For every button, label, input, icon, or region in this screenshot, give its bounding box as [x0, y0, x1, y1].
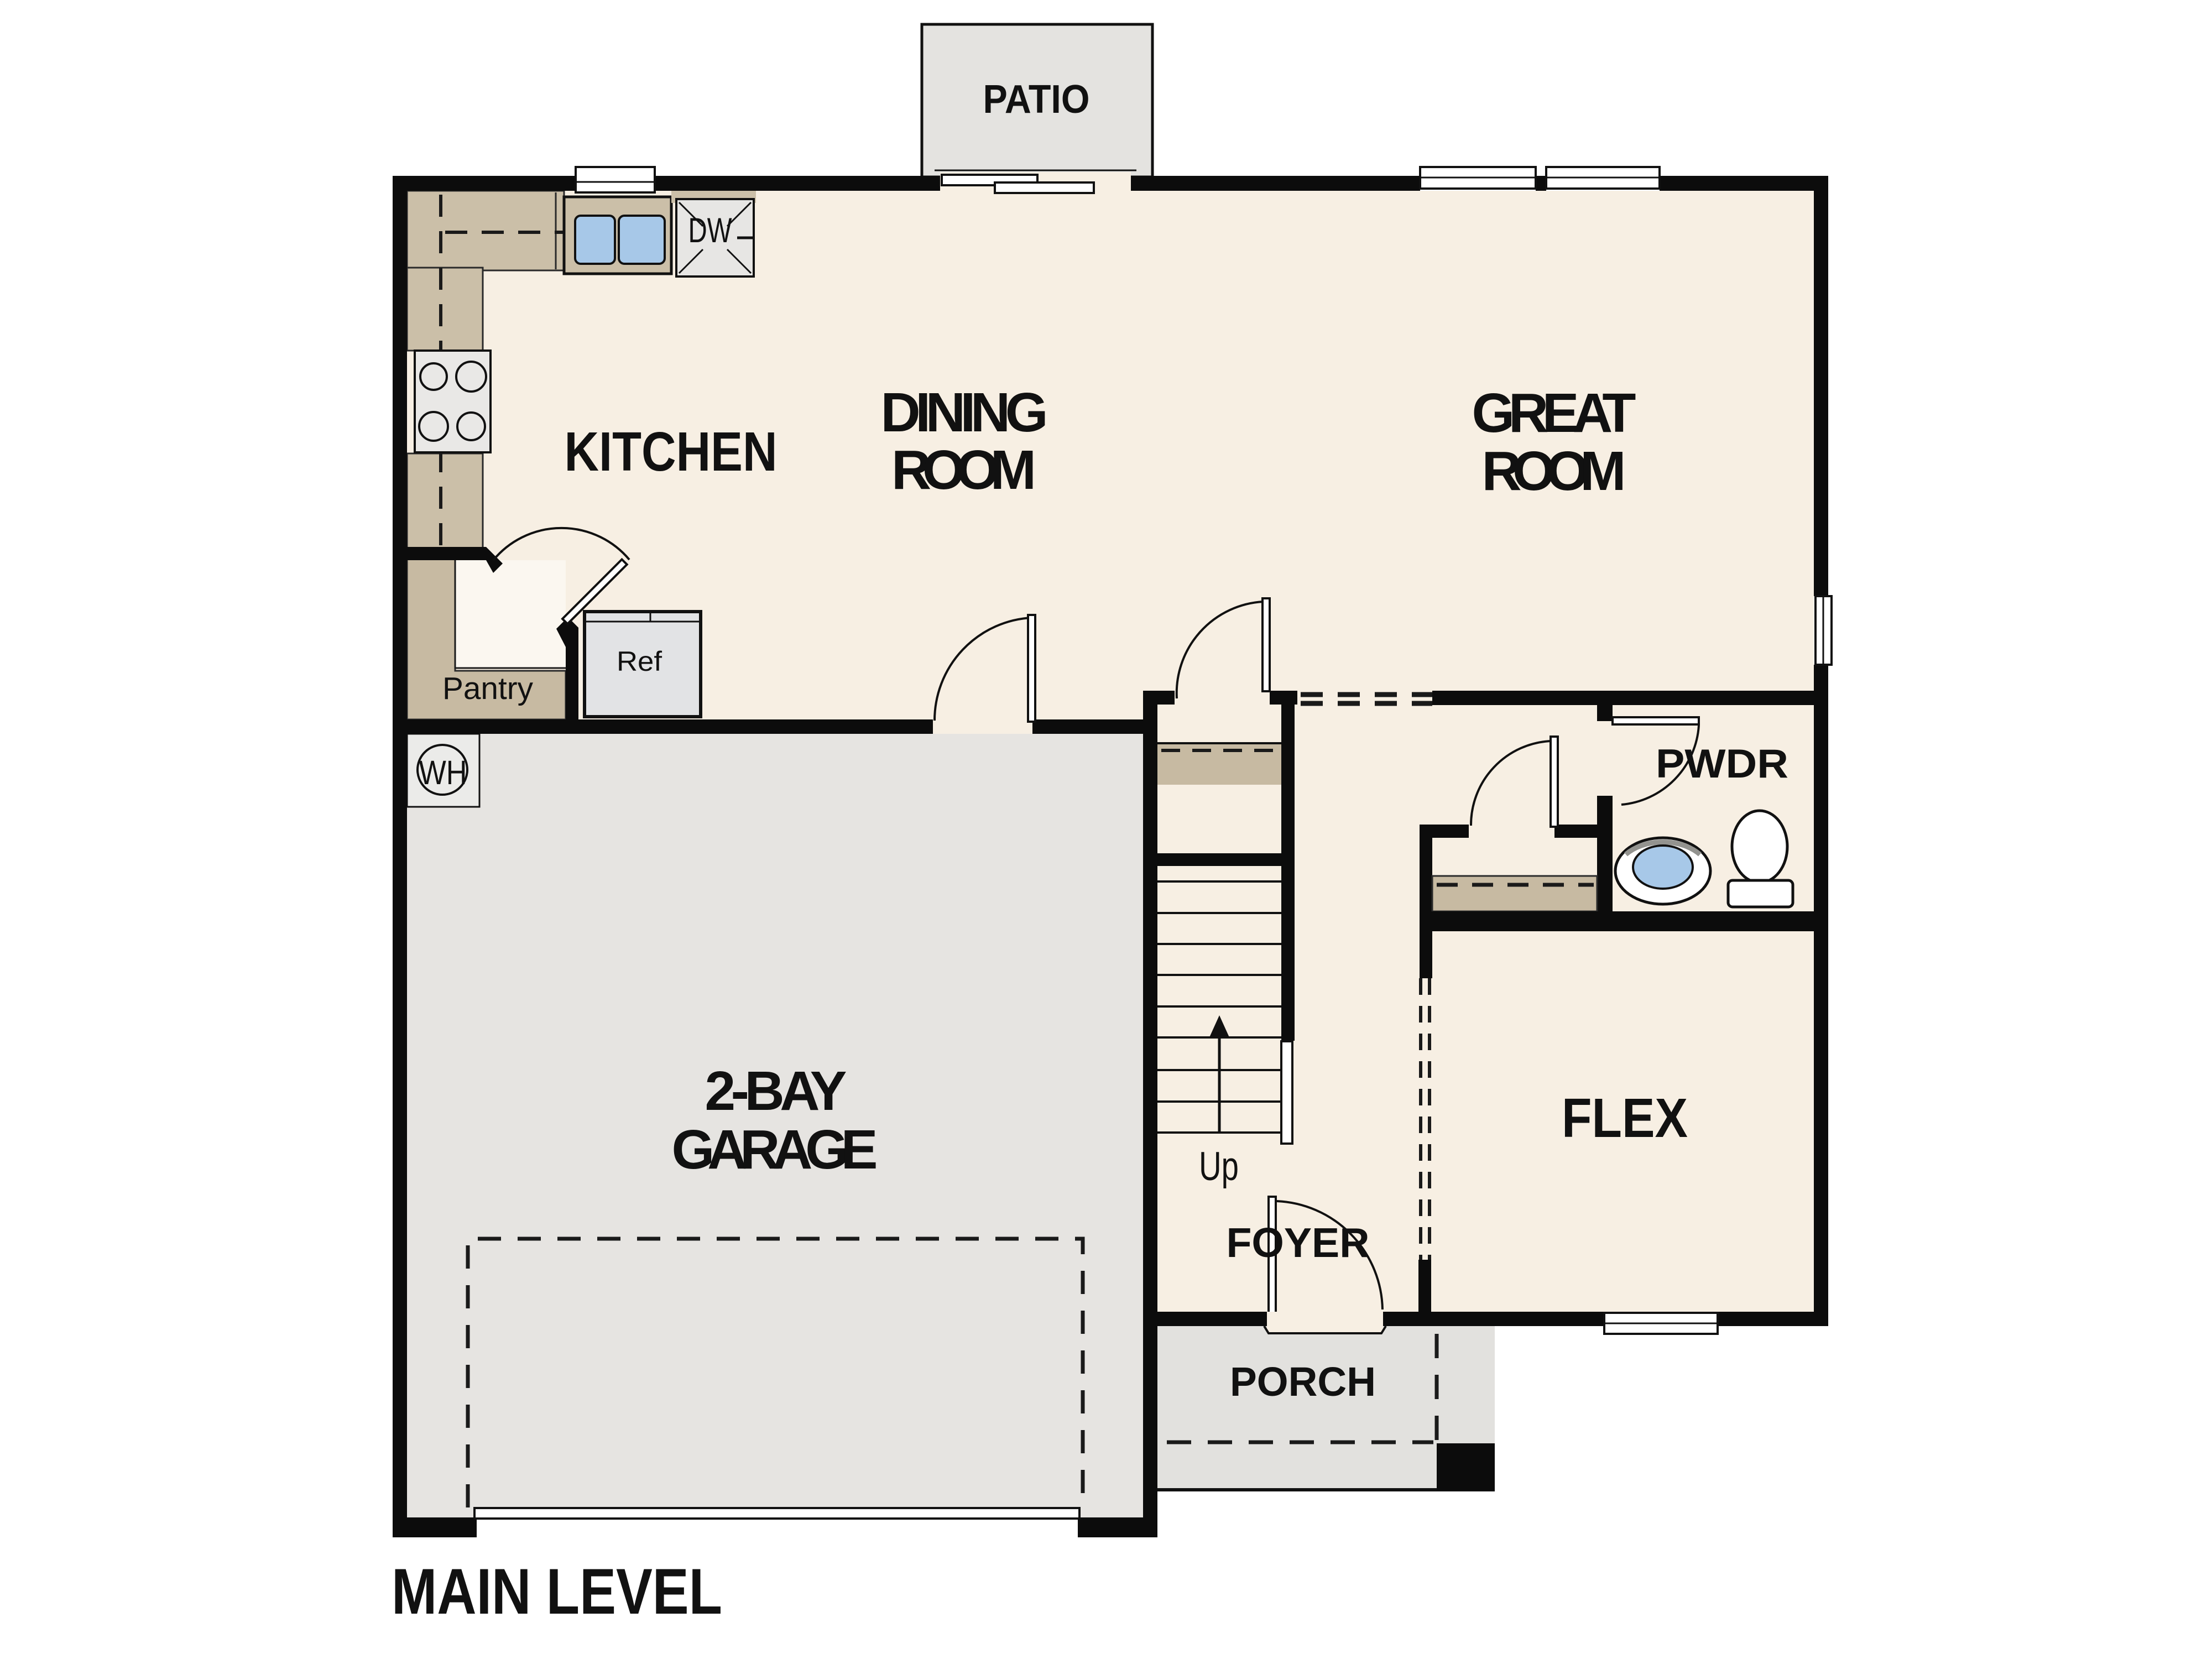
svg-text:MAIN LEVEL: MAIN LEVEL	[392, 1555, 722, 1627]
svg-text:GREAT: GREAT	[1472, 382, 1636, 444]
svg-text:PATIO: PATIO	[983, 77, 1090, 122]
svg-text:FLEX: FLEX	[1562, 1087, 1688, 1149]
svg-text:FOYER: FOYER	[1227, 1219, 1370, 1266]
svg-text:PWDR: PWDR	[1656, 742, 1788, 786]
svg-text:DINING: DINING	[881, 382, 1048, 444]
svg-text:Ref: Ref	[617, 646, 662, 677]
svg-text:WH: WH	[419, 754, 467, 791]
svg-text:2-BAY: 2-BAY	[705, 1060, 847, 1122]
svg-text:DW: DW	[688, 211, 732, 250]
svg-text:GARAGE: GARAGE	[672, 1119, 878, 1181]
svg-text:ROOM: ROOM	[891, 439, 1036, 501]
svg-text:Pantry: Pantry	[442, 671, 533, 706]
svg-text:PORCH: PORCH	[1230, 1359, 1376, 1405]
svg-text:Up: Up	[1199, 1144, 1239, 1189]
svg-text:KITCHEN: KITCHEN	[565, 421, 778, 483]
svg-text:ROOM: ROOM	[1482, 440, 1626, 502]
